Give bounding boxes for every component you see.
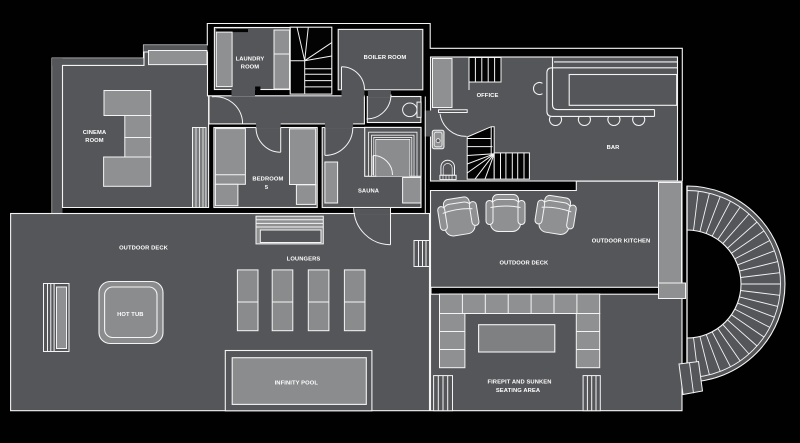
svg-text:OUTDOOR DECK: OUTDOOR DECK — [499, 260, 549, 266]
svg-text:SAUNA: SAUNA — [358, 189, 380, 195]
svg-text:SEATING AREA: SEATING AREA — [496, 388, 541, 394]
svg-text:CINEMA: CINEMA — [83, 130, 107, 136]
svg-text:OUTDOOR KITCHEN: OUTDOOR KITCHEN — [592, 238, 651, 244]
svg-text:ROOM: ROOM — [241, 65, 260, 71]
svg-text:LOUNGERS: LOUNGERS — [287, 256, 321, 262]
svg-text:OUTDOOR DECK: OUTDOOR DECK — [119, 245, 169, 251]
svg-text:BAR: BAR — [607, 145, 621, 151]
svg-text:FIREPIT AND SUNKEN: FIREPIT AND SUNKEN — [487, 379, 551, 385]
svg-text:OFFICE: OFFICE — [477, 93, 499, 99]
svg-text:INFINITY POOL: INFINITY POOL — [275, 380, 319, 386]
svg-text:BOILER ROOM: BOILER ROOM — [364, 55, 407, 61]
svg-text:BEDROOM: BEDROOM — [252, 176, 283, 182]
svg-text:ROOM: ROOM — [85, 138, 104, 144]
svg-text:HOT TUB: HOT TUB — [117, 312, 143, 318]
svg-text:LAUNDRY: LAUNDRY — [236, 56, 265, 62]
